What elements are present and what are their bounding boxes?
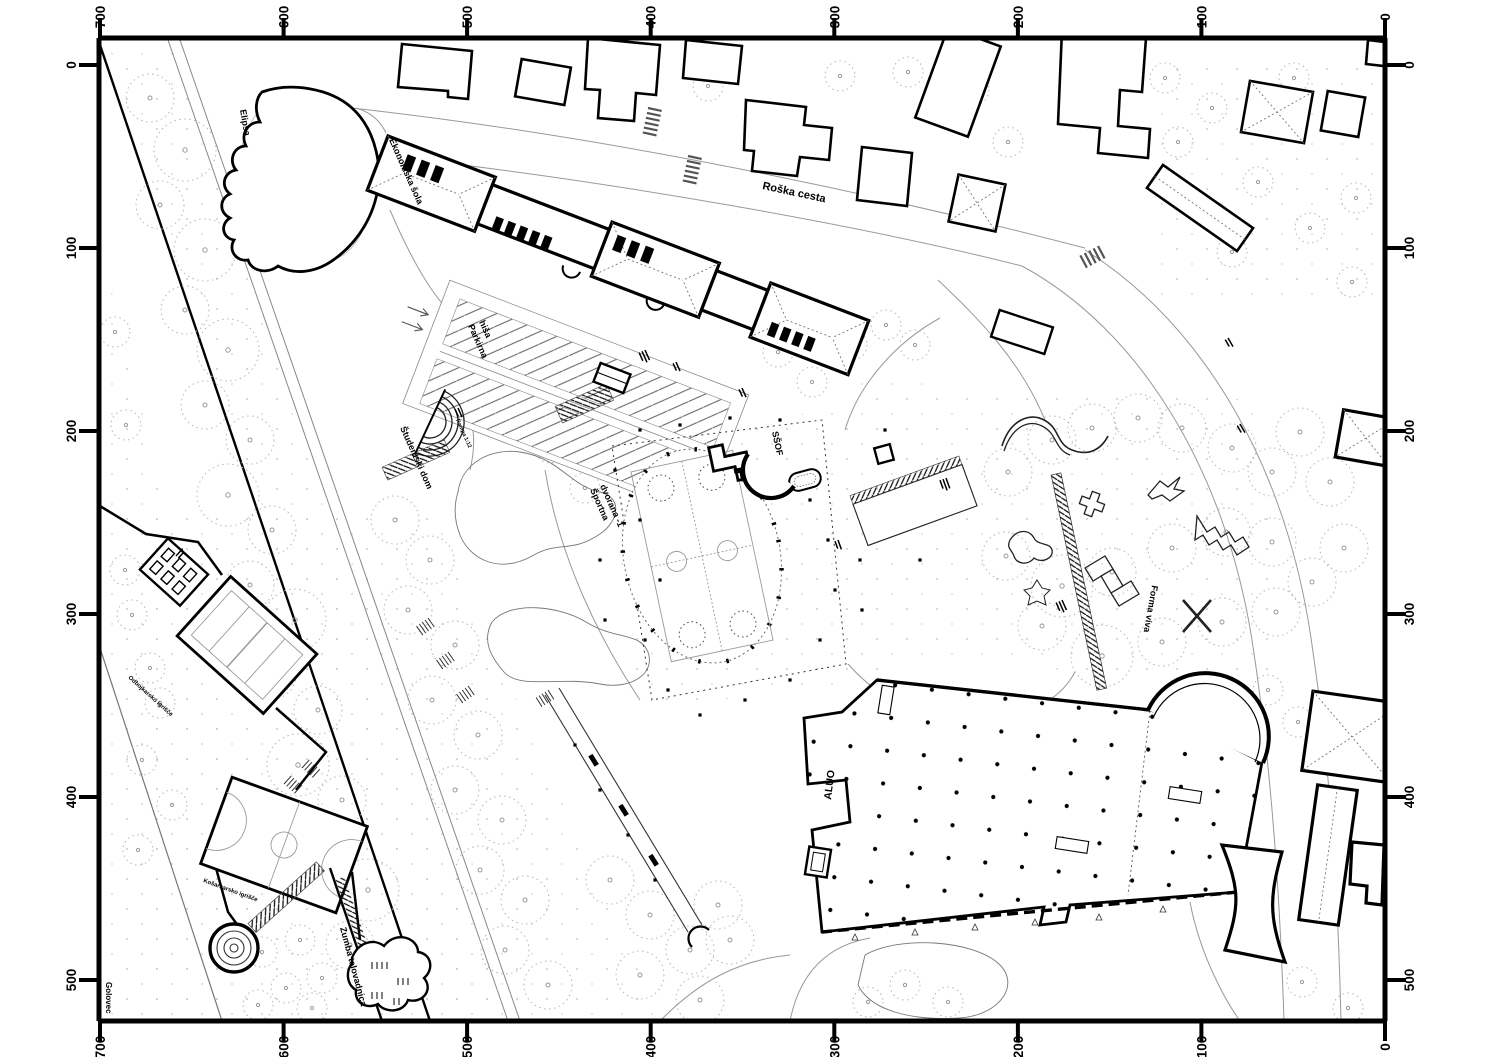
svg-text:400: 400 [644, 1036, 659, 1057]
svg-text:400: 400 [1402, 786, 1417, 809]
label-elipsa: Elipsa [238, 109, 253, 138]
aluo-building [804, 673, 1269, 940]
svg-text:400: 400 [644, 6, 659, 29]
label-roska-cesta: Roška cesta [761, 180, 827, 205]
bottom-lawn [858, 943, 1008, 1019]
svg-text:0: 0 [64, 61, 79, 69]
svg-text:100: 100 [1402, 237, 1417, 260]
svg-text:400: 400 [64, 786, 79, 809]
svg-text:300: 300 [827, 1036, 842, 1057]
svg-text:100: 100 [1194, 1036, 1209, 1057]
svg-text:300: 300 [1402, 603, 1417, 626]
svg-text:300: 300 [827, 6, 842, 29]
svg-text:500: 500 [460, 6, 475, 29]
site-plan-canvas: Elipsa Ekonomska šola Ro [0, 0, 1499, 1057]
svg-text:700: 700 [93, 6, 108, 29]
svg-text:700: 700 [93, 1036, 108, 1057]
svg-text:500: 500 [1402, 969, 1417, 992]
svg-text:200: 200 [1011, 6, 1026, 29]
svg-text:200: 200 [1011, 1036, 1026, 1057]
svg-text:100: 100 [64, 237, 79, 260]
label-golovec: Golovec [104, 982, 113, 1014]
svg-text:500: 500 [460, 1036, 475, 1057]
ruler-right-labels: 0 100 200 300 400 500 [1402, 61, 1417, 991]
ruler-left-labels: 0 100 200 300 400 500 [64, 61, 79, 991]
svg-text:200: 200 [1402, 420, 1417, 443]
svg-text:200: 200 [64, 420, 79, 443]
map-content: Elipsa Ekonomska šola Ro [100, 27, 1402, 1024]
svg-text:300: 300 [64, 603, 79, 626]
svg-text:600: 600 [277, 6, 292, 29]
ruler-bottom-labels: 700 600 500 400 300 200 100 0 [93, 1036, 1393, 1057]
svg-text:0: 0 [1378, 13, 1393, 21]
svg-text:100: 100 [1194, 6, 1209, 29]
svg-text:500: 500 [64, 969, 79, 992]
svg-text:600: 600 [277, 1036, 292, 1057]
svg-text:0: 0 [1402, 61, 1417, 69]
ruler-top-labels: 700 600 500 400 300 200 100 0 [93, 6, 1393, 29]
label-aluo: ALUO [822, 769, 838, 800]
svg-text:0: 0 [1378, 1043, 1393, 1051]
